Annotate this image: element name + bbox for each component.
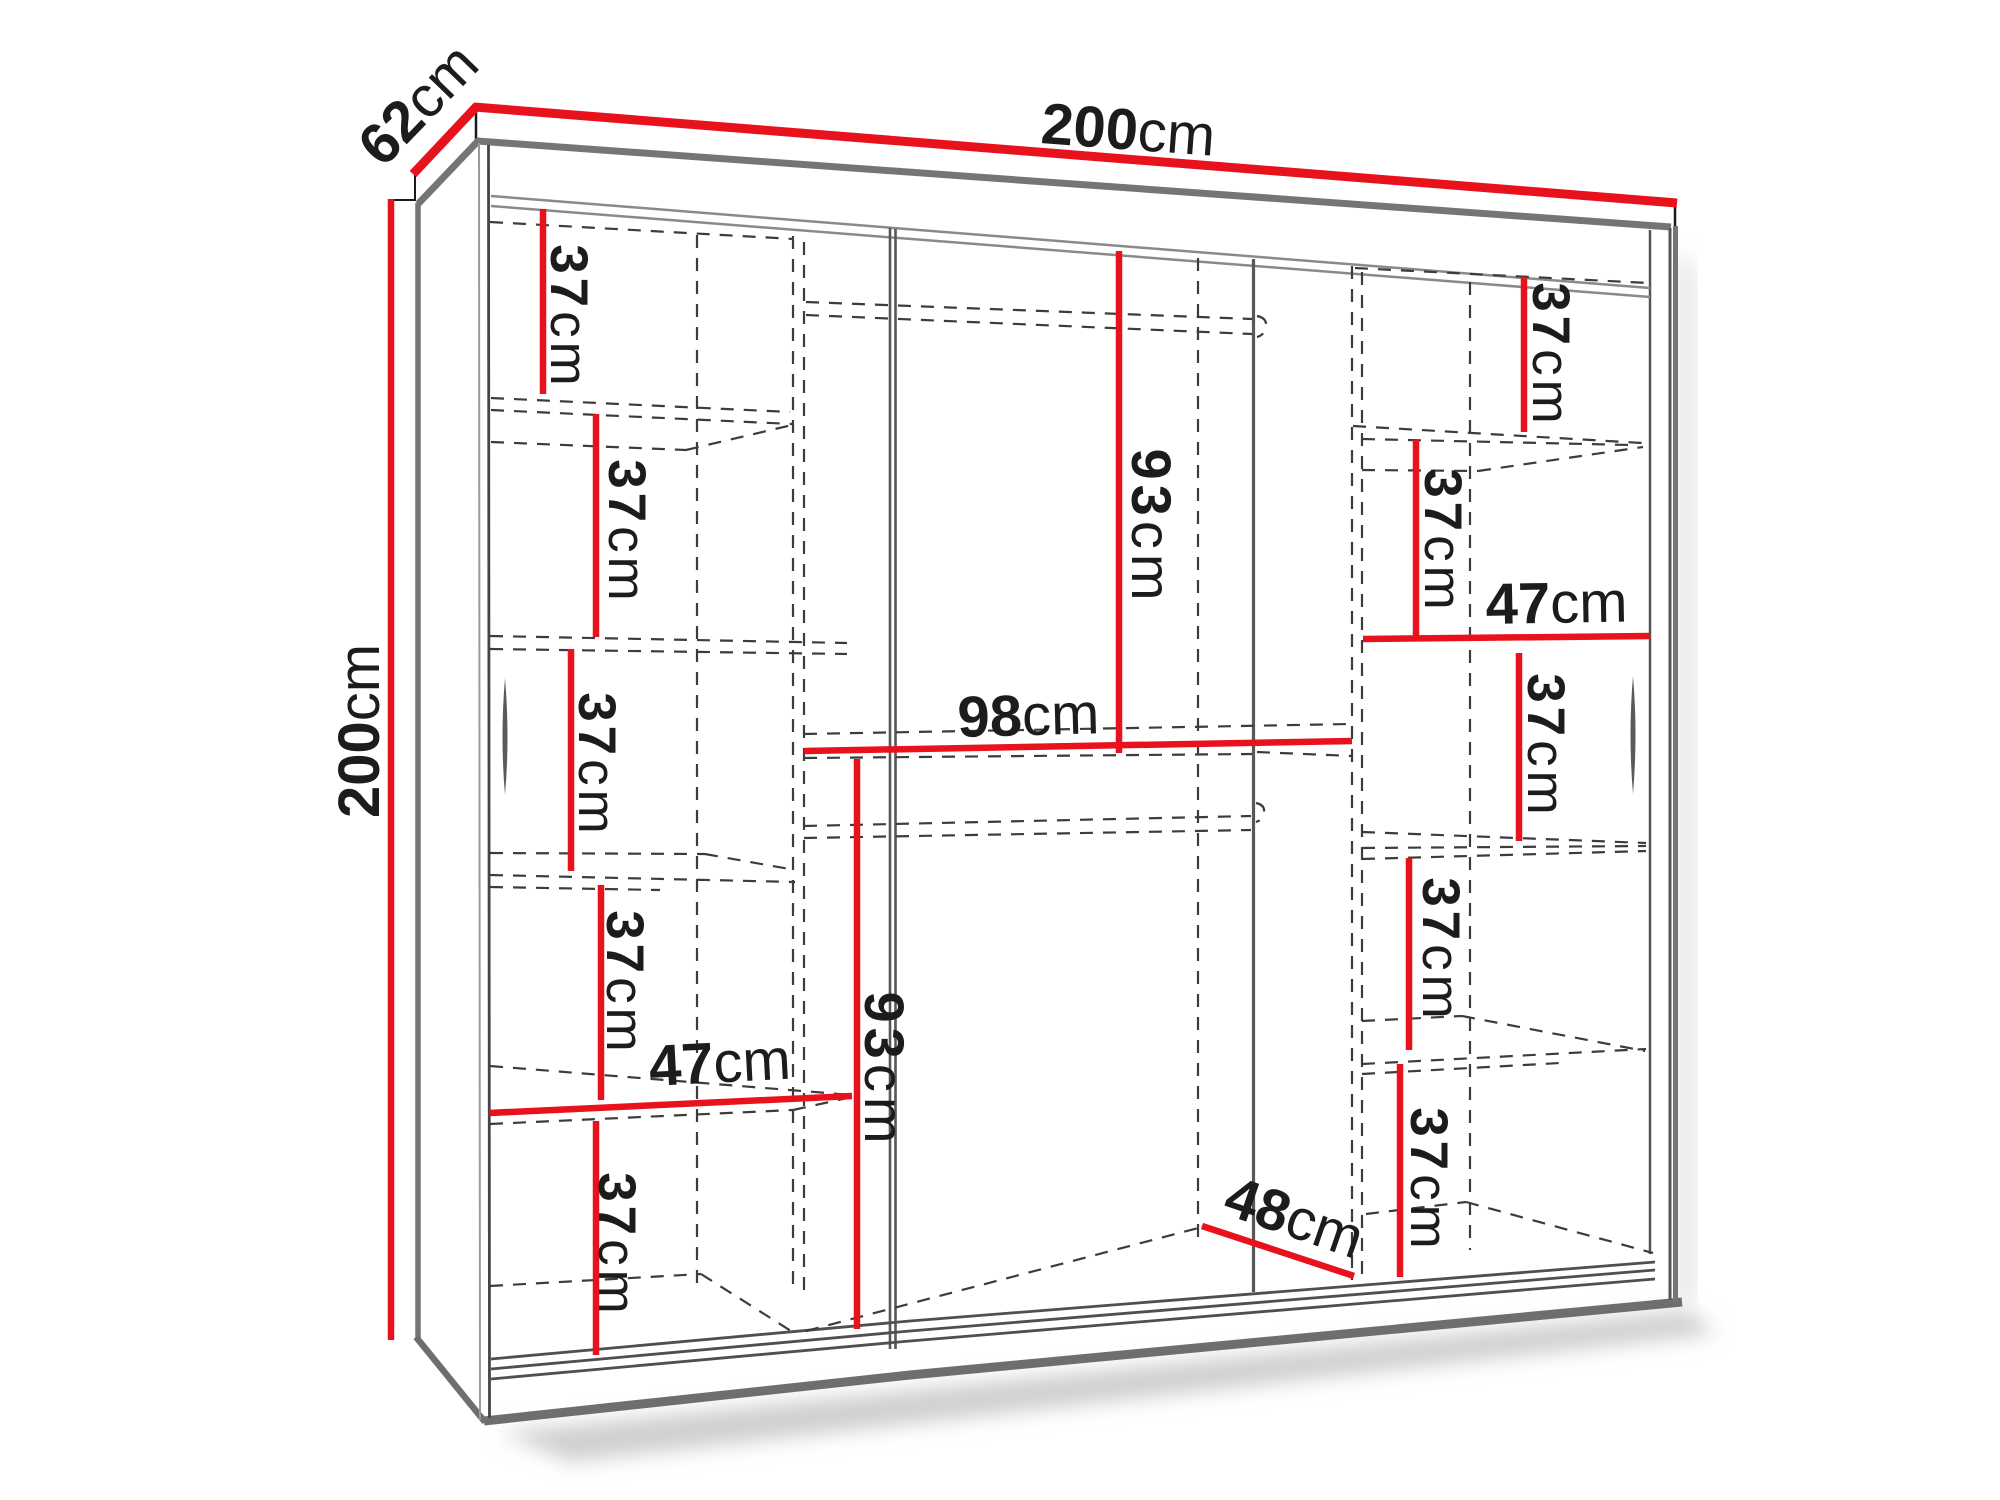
svg-text:200cm: 200cm [327, 644, 392, 818]
svg-text:93cm: 93cm [1120, 449, 1183, 606]
svg-text:37cm: 37cm [595, 910, 654, 1056]
svg-text:37cm: 37cm [1399, 1107, 1458, 1253]
svg-text:93cm: 93cm [853, 992, 916, 1149]
svg-text:37cm: 37cm [1521, 282, 1580, 428]
svg-text:47cm: 47cm [1485, 570, 1628, 637]
svg-text:37cm: 37cm [567, 692, 626, 838]
svg-text:37cm: 37cm [1516, 673, 1575, 819]
svg-text:98cm: 98cm [957, 681, 1100, 750]
svg-text:37cm: 37cm [587, 1172, 646, 1318]
svg-text:37cm: 37cm [597, 459, 656, 605]
svg-text:37cm: 37cm [1413, 468, 1472, 614]
svg-text:37cm: 37cm [1411, 877, 1470, 1023]
svg-text:200cm: 200cm [1039, 91, 1217, 169]
svg-text:47cm: 47cm [647, 1027, 792, 1099]
svg-text:37cm: 37cm [539, 244, 598, 390]
